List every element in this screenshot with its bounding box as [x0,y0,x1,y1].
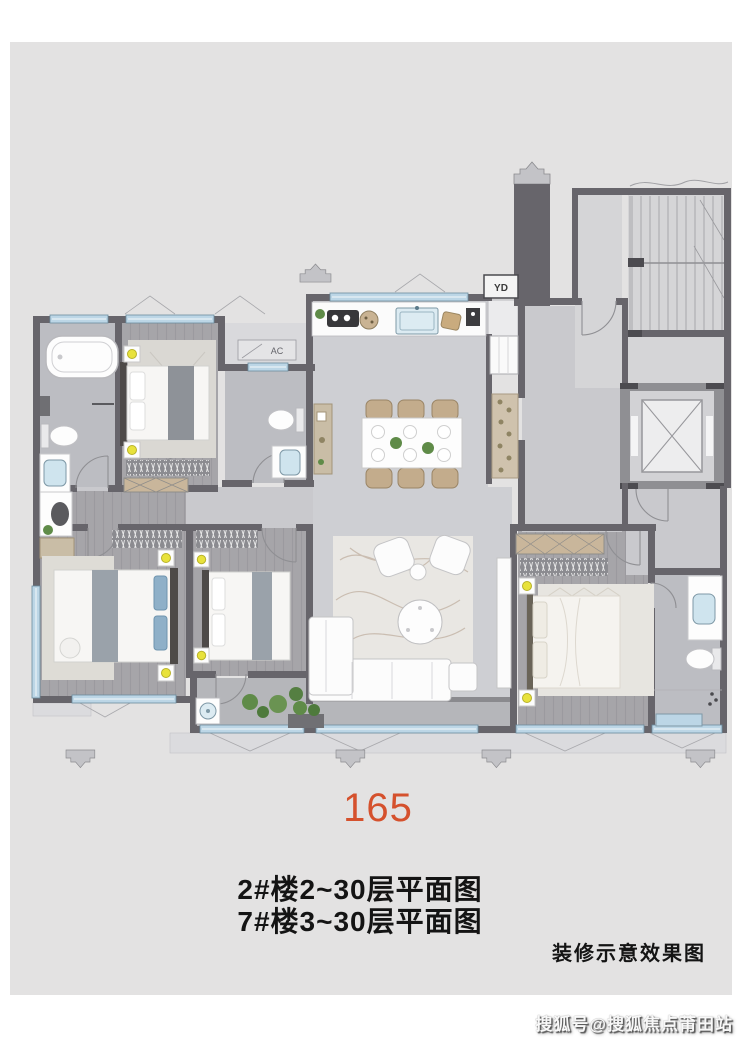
pouf [60,638,80,658]
caption-line-1: 2#楼2~30层平面图 [0,874,720,906]
table-plant [390,437,402,449]
bedroom-top [120,340,216,492]
sink [44,460,66,486]
toilet [686,649,714,669]
watermark: 搜狐号@搜狐焦点莆田站 [535,1010,733,1035]
steamer [360,311,378,329]
elevator [620,383,724,489]
desk-chair [51,502,69,526]
bath-cabinet [40,396,50,416]
cutting-board [441,311,462,330]
storage-bench [516,534,604,554]
utility-shaft: YD [484,275,518,298]
wardrobe [520,558,608,576]
cooktop [327,310,359,327]
ac-label: AC [271,346,284,356]
page: AC YD [0,0,740,1046]
fridge [490,336,518,374]
side-table [410,564,426,580]
caption: 2#楼2~30层平面图 7#楼3~30层平面图 [0,874,720,938]
disclaimer-text: 装修示意效果图 [552,937,706,966]
yd-label: YD [494,283,508,294]
toilet [50,426,78,446]
toilet [268,410,294,430]
sink [280,450,300,475]
shower-mat [656,714,702,726]
caption-line-2: 7#楼3~30层平面图 [0,906,720,938]
storage-bench [124,478,188,492]
wardrobe [196,530,258,548]
pantry-shelf [492,394,518,478]
area-number: 165 [343,786,413,831]
coffee-machine [466,308,480,326]
tv-console [497,558,511,688]
wardrobe [112,530,182,548]
sink [693,594,715,624]
wardrobe [126,460,210,476]
table-plant [422,442,434,454]
